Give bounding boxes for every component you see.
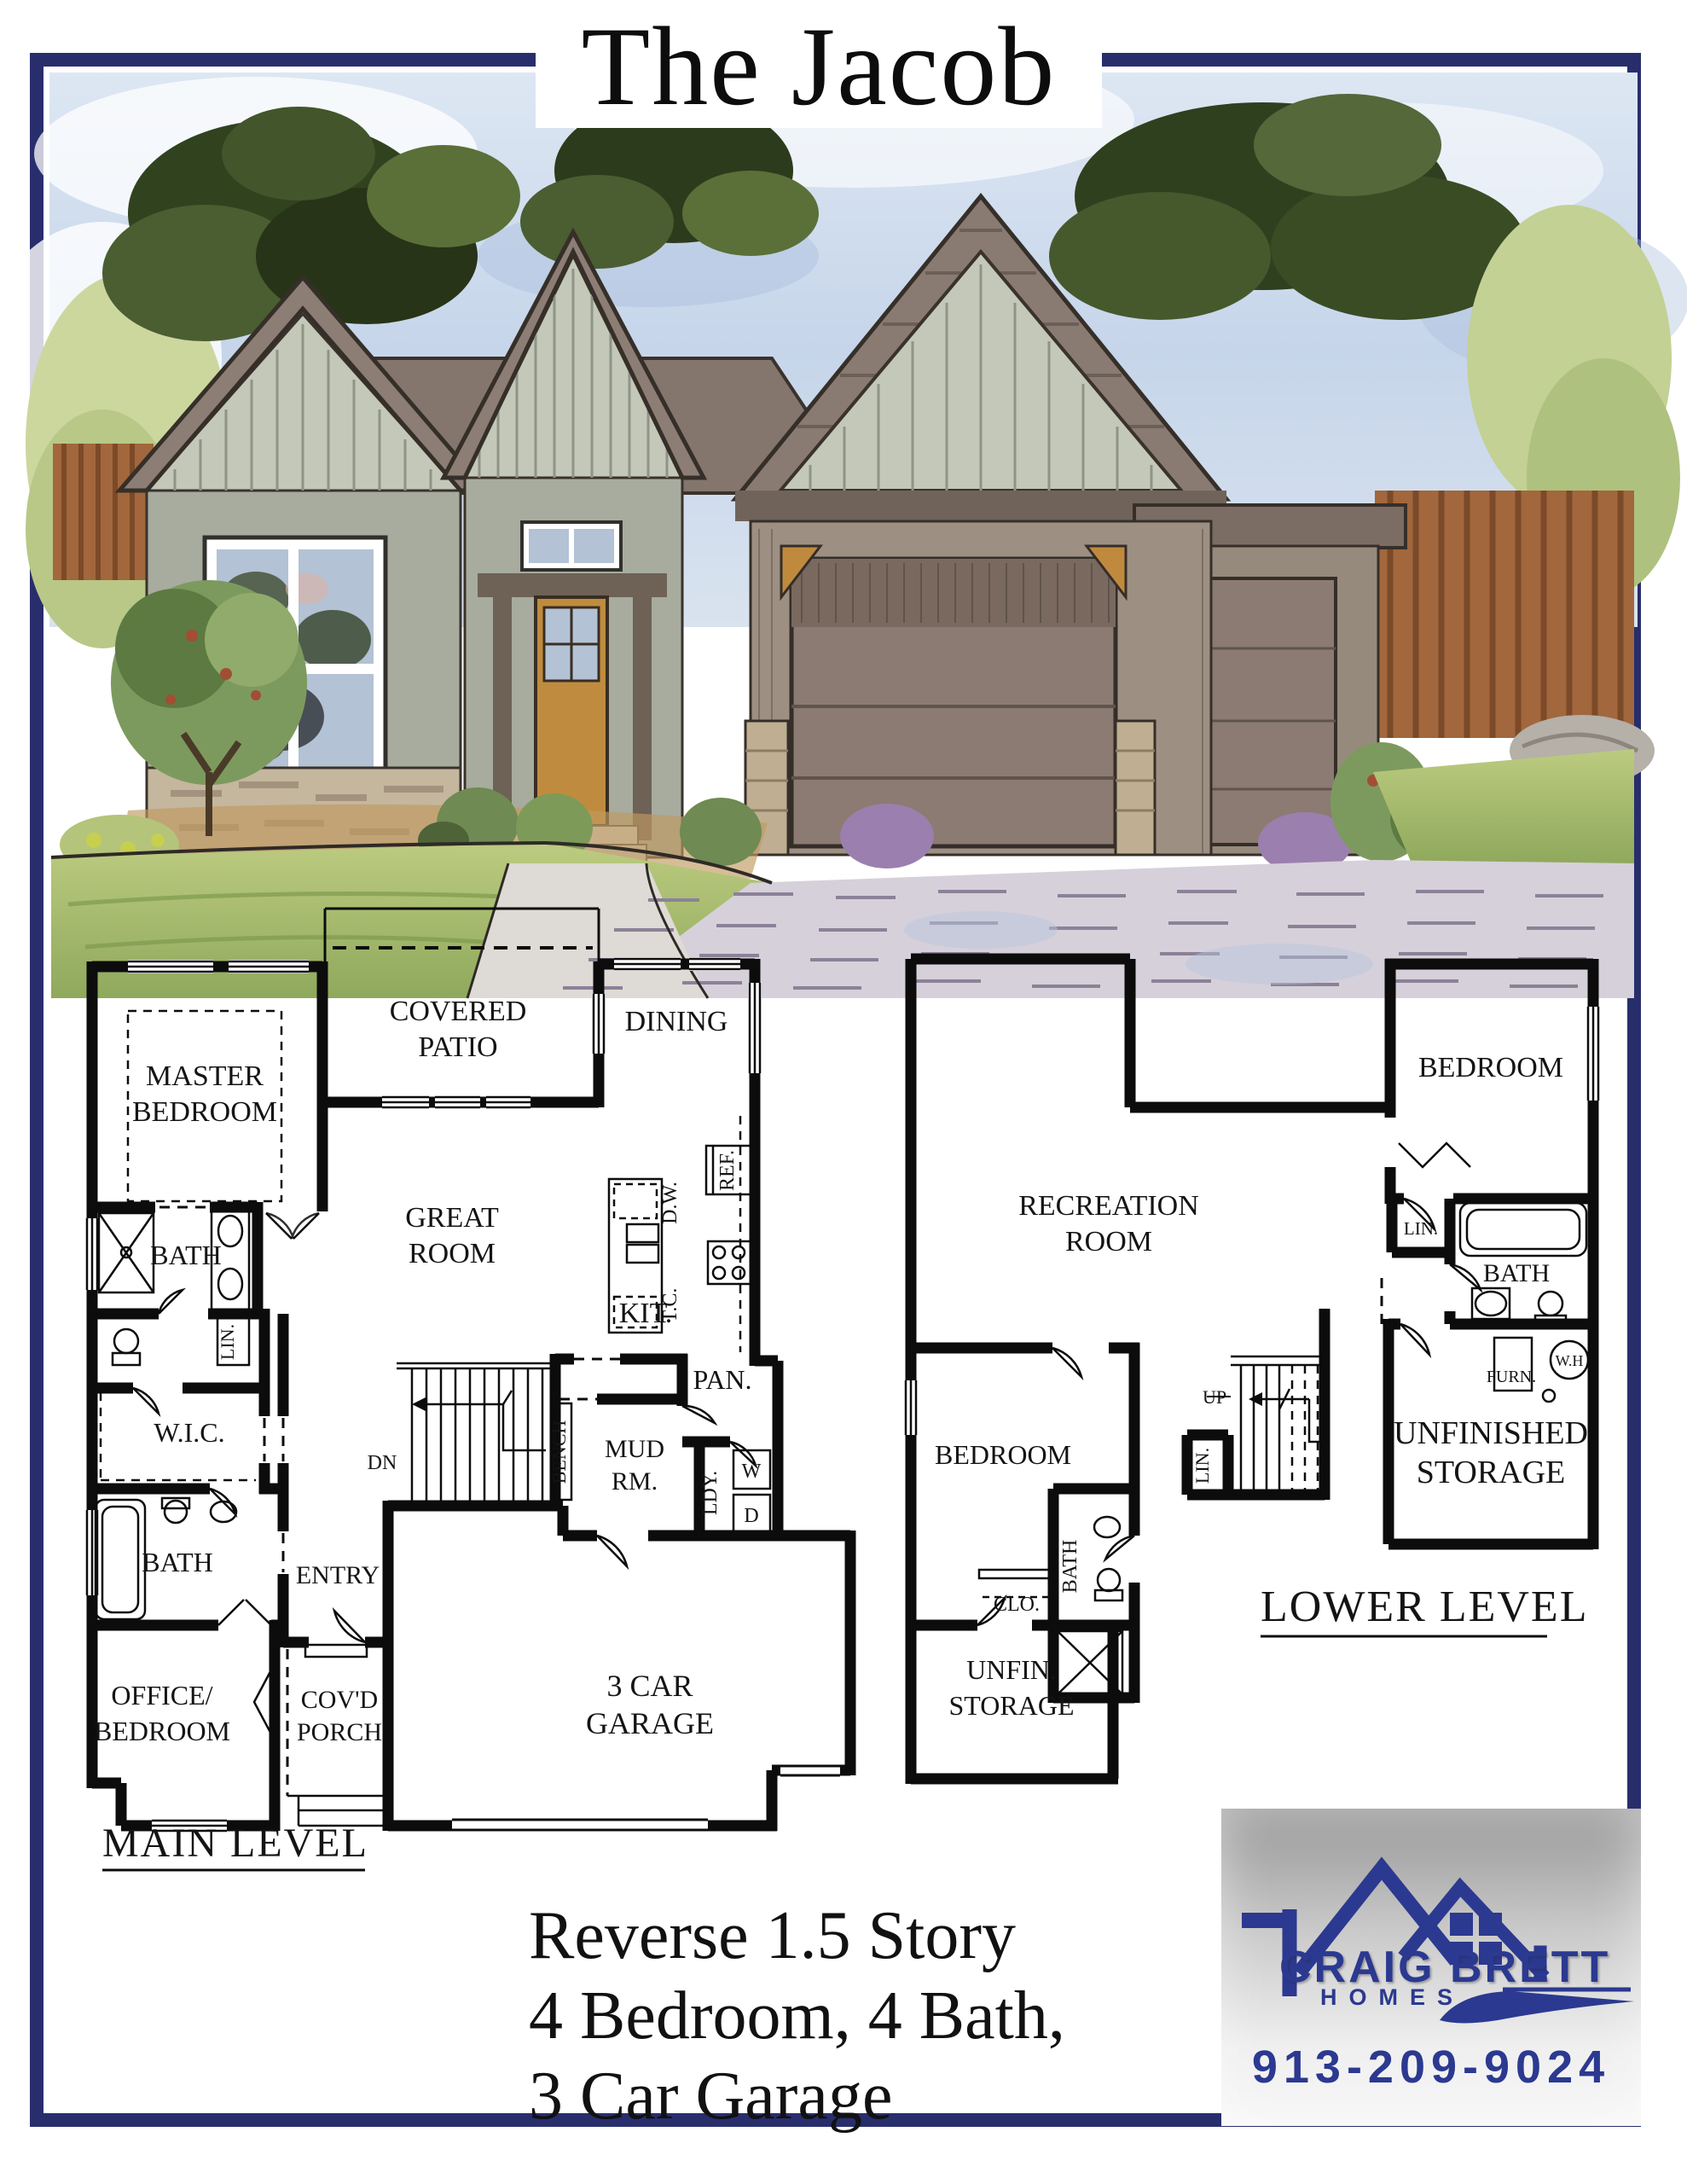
room-label-lin: LIN. (217, 1324, 238, 1360)
room-label-garage-1: 3 CAR (606, 1669, 693, 1703)
logo-tagline: HOMES (1320, 1984, 1464, 2011)
room-label-bath2: BATH (142, 1547, 213, 1577)
room-label-garage-2: GARAGE (586, 1706, 714, 1740)
flyer-page: MASTER BEDROOM COVERED PATIO DINING GREA… (0, 0, 1687, 2184)
room-label-patio-2: PATIO (418, 1031, 497, 1063)
room-label-entry: ENTRY (296, 1561, 380, 1589)
room-label-mud-1: MUD (605, 1435, 664, 1463)
room-label-dining: DINING (625, 1006, 728, 1037)
room-label-wic: W.I.C. (154, 1417, 224, 1448)
room-label-ldy: LDY. (699, 1471, 722, 1515)
room-label-bed-left: BEDROOM (935, 1439, 1071, 1470)
room-label-pan: PAN. (693, 1364, 751, 1395)
summary-line-1: Reverse 1.5 Story (529, 1896, 1065, 1976)
room-label-office-2: BEDROOM (94, 1716, 230, 1746)
lower-stairs (1231, 1356, 1325, 1491)
room-label-dn: DN (368, 1452, 397, 1474)
room-label-porch-2: PORCH (297, 1718, 382, 1746)
room-label-dryer: D (744, 1505, 758, 1527)
room-label-great-2: ROOM (409, 1238, 496, 1269)
room-label-bath1: BATH (150, 1240, 222, 1270)
room-label-dw: D.W. (659, 1182, 681, 1224)
room-label-storage-left-1: UNFIN. (966, 1654, 1057, 1685)
room-label-patio-1: COVERED (390, 996, 527, 1027)
logo-phone: 913-209-9024 (1221, 2041, 1641, 2094)
page-title: The Jacob (582, 1, 1057, 131)
room-label-rec-1: RECREATION (1018, 1190, 1199, 1222)
room-label-furn: FURN. (1487, 1368, 1536, 1386)
room-label-master-1: MASTER (146, 1060, 264, 1092)
summary-text: Reverse 1.5 Story 4 Bedroom, 4 Bath, 3 C… (529, 1896, 1065, 2136)
room-label-ref: REF. (716, 1150, 739, 1191)
room-label-storage-right-2: STORAGE (1417, 1455, 1566, 1490)
room-label-bed-right: BEDROOM (1418, 1052, 1563, 1083)
main-floor-plan: MASTER BEDROOM COVERED PATIO DINING GREA… (85, 909, 850, 1870)
room-label-lin-stairs: LIN. (1191, 1448, 1213, 1484)
room-label-bath-left: BATH (1059, 1540, 1081, 1594)
room-label-porch-1: COV'D (301, 1686, 378, 1714)
room-label-mud-2: RM. (612, 1467, 658, 1496)
room-label-bath-right: BATH (1483, 1259, 1550, 1287)
room-label-rec-2: ROOM (1065, 1226, 1152, 1258)
lower-level-heading: LOWER LEVEL (1261, 1583, 1588, 1631)
room-label-great-1: GREAT (405, 1202, 499, 1234)
title-box: The Jacob (536, 3, 1102, 128)
room-label-lin-upper: LIN. (1404, 1218, 1438, 1239)
room-label-bench: BENCH (548, 1420, 570, 1484)
room-label-master-2: BEDROOM (132, 1096, 277, 1128)
summary-line-2: 4 Bedroom, 4 Bath, (529, 1976, 1065, 2056)
room-label-storage-left-2: STORAGE (949, 1690, 1075, 1721)
main-level-heading: MAIN LEVEL (102, 1821, 368, 1866)
lower-floor-plan: RECREATION ROOM BEDROOM LIN. BATH FURN. … (904, 959, 1600, 1784)
room-label-clo: CLO. (994, 1594, 1040, 1616)
room-label-tc: T.C. (659, 1288, 681, 1323)
main-stairs (397, 1363, 555, 1501)
room-label-storage-right-1: UNFINISHED (1394, 1415, 1588, 1451)
summary-line-3: 3 Car Garage (529, 2056, 1065, 2136)
room-label-wh: W.H (1556, 1352, 1584, 1369)
room-label-office-1: OFFICE/ (111, 1680, 212, 1711)
room-label-washer: W (742, 1461, 762, 1483)
